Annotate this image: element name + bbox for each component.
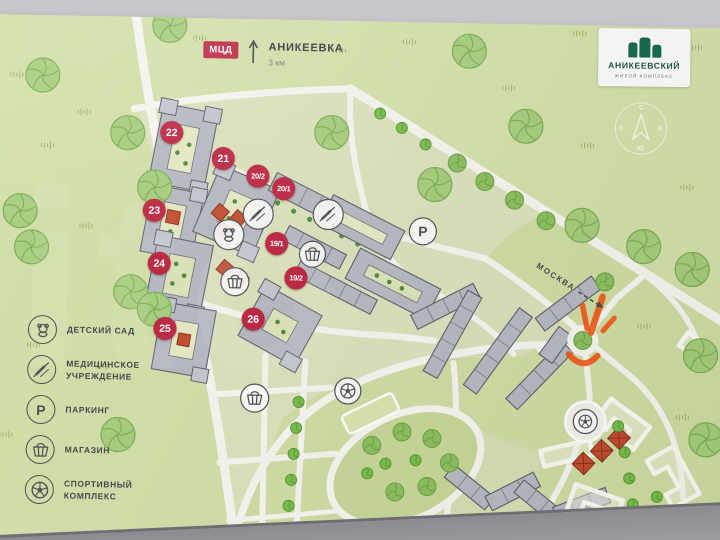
north-arrow-icon (247, 37, 260, 65)
legend-item-shop: МАГАЗИН (25, 435, 143, 466)
compass-rose: С В Ю З (614, 102, 667, 155)
legend: ДЕТСКИЙ САД МЕДИЦИНСКОЕ УЧРЕЖДЕНИЕ P ПАР… (24, 315, 145, 517)
transit-callout: МЦД АНИКЕЕВКА 3 км (203, 36, 344, 69)
medical-icon (313, 199, 344, 230)
logo-subtitle: ЖИЛОЙ КОМПЛЕКС (615, 73, 674, 79)
station-name: АНИКЕЕВКА (268, 41, 343, 54)
parking-icon: P (26, 395, 56, 425)
map-board: P ito 22 21 20/2 20/1 23 24 19/1 19/2 25… (0, 14, 720, 540)
teddy-bear-icon (214, 219, 245, 250)
soccer-ball-icon (335, 378, 361, 404)
svg-text:P: P (418, 223, 428, 239)
basket-icon (240, 384, 269, 413)
legend-item-medical: МЕДИЦИНСКОЕ УЧРЕЖДЕНИЕ (27, 355, 145, 386)
mcd-badge: МЦД (203, 41, 238, 59)
basket-icon (25, 435, 55, 465)
compass-south: Ю (637, 145, 644, 152)
soccer-ball-icon (25, 475, 55, 505)
medical-icon (27, 355, 57, 385)
compass-west: З (619, 125, 623, 132)
logo-card: АНИКЕЕВСКИЙ ЖИЛОЙ КОМПЛЕКС (598, 28, 691, 87)
soccer-ball-icon (565, 401, 606, 442)
legend-item-sport: СПОРТИВНЫЙ КОМПЛЕКС (25, 475, 143, 506)
basket-icon (221, 267, 250, 296)
parking-icon: P (409, 218, 437, 246)
legend-item-parking: P ПАРКИНГ (26, 395, 144, 426)
legend-item-kindergarten: ДЕТСКИЙ САД (28, 315, 146, 346)
teddy-bear-icon (28, 315, 58, 345)
compass-north: С (639, 104, 644, 111)
photo-of-masterplan-board: P ito 22 21 20/2 20/1 23 24 19/1 19/2 25… (0, 0, 720, 540)
station-distance: 3 км (268, 57, 343, 68)
logo-trees-icon (628, 37, 661, 57)
basket-icon (299, 241, 325, 267)
compass-east: В (658, 125, 663, 132)
medical-icon (243, 199, 274, 230)
logo-title: АНИКЕЕВСКИЙ (608, 60, 680, 71)
